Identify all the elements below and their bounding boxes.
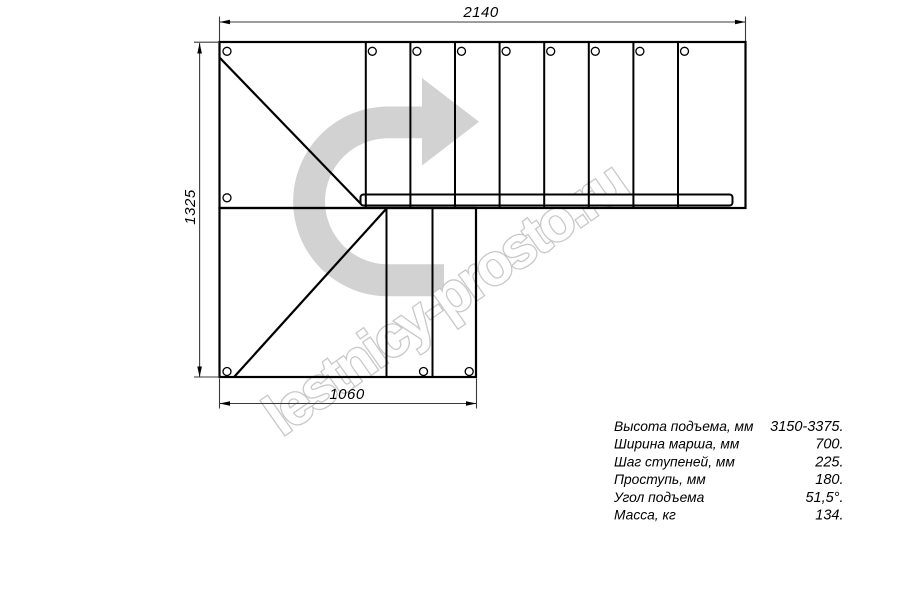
svg-text:Проступь, мм: Проступь, мм [614,472,706,487]
svg-text:700.: 700. [815,437,843,453]
svg-text:1060: 1060 [329,386,365,403]
svg-text:134.: 134. [815,508,843,524]
svg-text:Ширина марша, мм: Ширина марша, мм [614,437,740,452]
svg-text:Масса, кг: Масса, кг [614,508,676,523]
svg-text:51,5°.: 51,5°. [805,490,843,506]
svg-text:2140: 2140 [462,4,499,21]
svg-text:Высота подъема, мм: Высота подъема, мм [614,419,754,434]
svg-text:Угол подъема: Угол подъема [613,490,705,505]
svg-text:180.: 180. [815,472,843,488]
svg-text:1325: 1325 [182,189,199,225]
svg-text:225.: 225. [814,454,843,470]
svg-text:3150-3375.: 3150-3375. [770,419,843,435]
svg-text:Шаг ступеней, мм: Шаг ступеней, мм [614,454,735,469]
